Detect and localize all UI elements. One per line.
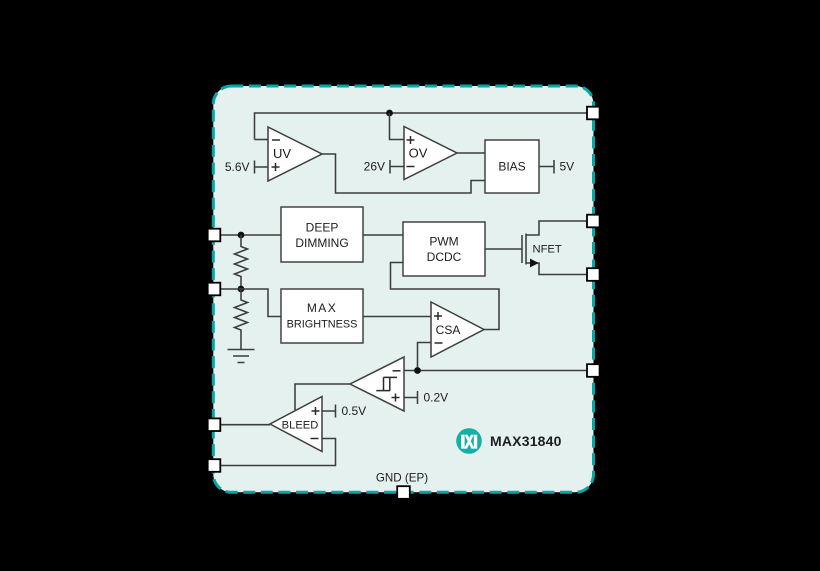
svg-text:DCDC: DCDC <box>427 250 462 264</box>
svg-text:GND (EP): GND (EP) <box>376 471 428 484</box>
svg-text:0.2V: 0.2V <box>424 391 449 405</box>
svg-text:UV: UV <box>273 146 291 161</box>
svg-text:5.6V: 5.6V <box>225 160 250 174</box>
svg-text:BLEED: BLEED <box>282 419 319 431</box>
svg-text:OV: OV <box>409 145 428 160</box>
svg-text:0.5V: 0.5V <box>342 404 367 418</box>
svg-text:NFET: NFET <box>533 243 562 255</box>
svg-text:5V: 5V <box>560 160 575 174</box>
svg-text:BIAS: BIAS <box>498 160 525 174</box>
svg-text:DEEP: DEEP <box>306 221 339 235</box>
svg-text:PWM: PWM <box>429 235 458 249</box>
svg-text:CSA: CSA <box>436 323 461 337</box>
svg-text:DIMMING: DIMMING <box>295 236 348 250</box>
svg-text:26V: 26V <box>364 160 385 174</box>
svg-text:BRIGHTNESS: BRIGHTNESS <box>287 319 358 331</box>
svg-text:MAX: MAX <box>307 301 337 315</box>
svg-text:MAX31840: MAX31840 <box>490 433 562 449</box>
